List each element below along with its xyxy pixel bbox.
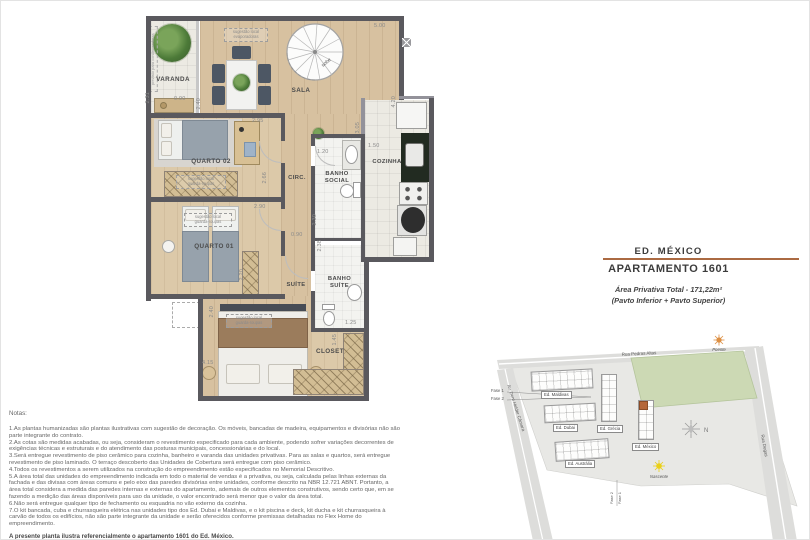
wardrobe-note-q2: sugestão local guarda-roupas [176, 175, 226, 189]
label-ed-grecia: Ed. Grécia [597, 425, 623, 433]
wall-segment [364, 261, 369, 401]
room-label-banho-social: BANHO SOCIAL [314, 171, 360, 184]
dim-label: 0.90 [291, 232, 303, 238]
bed-bench [220, 304, 306, 311]
pillow [226, 364, 260, 384]
wall-segment [146, 294, 285, 299]
area-total-label: Área Privativa Total - 171,22m² [586, 285, 751, 294]
dim-label: 2.40 [196, 98, 202, 110]
note-item: 5.A área total das unidades do empreendi… [9, 474, 401, 501]
nightstand [202, 366, 216, 380]
decor-bowl [160, 102, 167, 109]
wall-segment [198, 396, 369, 401]
apartment-title: APARTAMENTO 1601 [601, 263, 736, 275]
wall-segment [361, 257, 434, 262]
notes-footer: A presente planta ilustra referencialmen… [9, 533, 401, 540]
nascente-label: Nascente [650, 474, 669, 479]
reserved-area-outline [172, 302, 200, 328]
kitchen-cabinet [393, 237, 417, 256]
wall-segment [146, 197, 285, 202]
highlighted-unit-marker [639, 401, 648, 410]
label-ed-mexico: Ed. México [632, 443, 659, 451]
toilet-bowl-suite [323, 311, 335, 326]
dim-label: 5.00 [374, 23, 386, 29]
shaft-icon [402, 38, 411, 47]
wall-segment [146, 16, 151, 301]
wall-segment [281, 113, 285, 141]
note-item: 4.Todos os revestimentos a serem utiliza… [9, 467, 401, 474]
wall-segment [311, 138, 315, 146]
wall-segment [311, 241, 315, 271]
room-label-quarto01: QUARTO 01 [174, 243, 254, 250]
toilet-tank [353, 182, 361, 198]
fase2-vertical-label: Fase 2 [609, 492, 614, 504]
note-item: 6.Não será entregue qualquer tipo de fec… [9, 501, 401, 508]
room-label-circ: CIRC. [282, 175, 312, 182]
washbasin [345, 145, 358, 164]
wall-segment [311, 134, 365, 138]
chair [232, 46, 251, 59]
label-ed-australia: Ed. Austrália [565, 460, 595, 468]
dim-label: 2.95 [252, 118, 264, 124]
chair [258, 64, 271, 83]
wall-segment [198, 296, 203, 401]
label-ed-maldivas: Ed. Maldivas [541, 391, 572, 399]
poente-label: Poente [712, 347, 726, 352]
room-label-varanda: VARANDA [148, 76, 198, 83]
dim-label: 1.45 [332, 334, 338, 346]
wall-segment [399, 16, 404, 100]
dim-label: 2.66 [262, 172, 268, 184]
toilet-tank-suite [322, 304, 335, 310]
area-pavtos-label: (Pavto Inferior + Pavto Superior) [586, 296, 751, 305]
oven-door [401, 207, 425, 233]
building-title: ED. MÉXICO [601, 246, 736, 257]
wall-segment [311, 328, 364, 332]
building-dubai [544, 403, 597, 424]
cooktop [399, 182, 428, 205]
floorplan-page: previsto para condensadoras sobe sugestã… [0, 0, 810, 540]
bed-blanket [212, 231, 239, 282]
bed-blanket [182, 231, 209, 282]
chair [258, 86, 271, 105]
site-plan: N Poente Nascente Fase 2 Fase 1 [491, 334, 810, 540]
wall-segment [146, 113, 285, 118]
title-divider [603, 258, 799, 260]
building-australia [554, 438, 609, 462]
dim-label: 4.20 [391, 96, 397, 108]
half-wall [361, 98, 365, 136]
closet-wardrobe-bottom [293, 369, 364, 395]
building-grecia [601, 374, 617, 422]
dim-label: 1.25 [345, 320, 357, 326]
room-label-suite: SUÍTE [279, 282, 313, 289]
note-item: 7.O kit bancada, cuba e churrasqueira el… [9, 508, 401, 528]
dim-label: 2.38 [317, 240, 323, 252]
room-label-quarto02: QUARTO 02 [171, 158, 251, 165]
wall-segment [361, 136, 365, 261]
dim-label: 2.40 [209, 306, 215, 318]
compass-north-label: N [704, 428, 708, 434]
wardrobe-note-q1: sugestão local guarda-roupas [184, 213, 232, 227]
room-label-sala: SALA [284, 87, 318, 94]
dim-label: 0.90 [174, 96, 186, 102]
poente-sun-icon [714, 335, 725, 346]
wall-segment [146, 16, 404, 21]
fase1-label: Fase 1 [491, 388, 504, 393]
wardrobe-note-suite: sugestão local guarda-roupas [226, 314, 272, 328]
note-item: 3.Será entregue revestimento de piso cer… [9, 453, 401, 467]
plant-icon [153, 24, 191, 62]
ac-suggestion-note: sugestão local evaporadoras [224, 28, 268, 42]
notes-heading: Notas: [9, 410, 401, 417]
table-plant-icon [233, 74, 250, 91]
toilet-bowl [340, 184, 354, 198]
dim-label: 2.20 [239, 269, 245, 281]
dim-label: 1.50 [368, 143, 380, 149]
notes-block: Notas: 1.As plantas humanizadas são plan… [9, 410, 401, 540]
floor-plan: previsto para condensadoras sobe sugestã… [146, 16, 438, 402]
dim-label: 2.90 [254, 204, 266, 210]
fridge [396, 102, 427, 129]
room-label-cozinha: COZINHA [365, 159, 409, 166]
dim-label: 2.30 [312, 214, 318, 226]
chair [212, 64, 225, 83]
room-label-closet: CLOSET [304, 348, 356, 355]
desk-papers [244, 142, 256, 157]
chair [212, 86, 225, 105]
building-maldivas [531, 368, 594, 391]
wall-segment [429, 98, 434, 261]
dim-label: 3.05 [355, 122, 361, 134]
room-label-banho-suite: BANHO SUÍTE [315, 276, 364, 289]
dim-label: 1.20 [317, 149, 329, 155]
wall-segment [311, 291, 315, 331]
note-item: 1.As plantas humanizadas são plantas ilu… [9, 426, 401, 440]
wall-segment [281, 231, 285, 256]
spiral-stair-icon: sobe [282, 20, 346, 84]
dim-label: 2.31 [145, 92, 151, 104]
desk-lamp [239, 127, 244, 132]
fase1-vertical-label: Fase 1 [617, 492, 622, 504]
bed-blanket [182, 120, 228, 160]
pillow [161, 123, 172, 138]
wall-segment [281, 163, 285, 209]
note-item: 2.As cotas são medidas acabadas, ou seja… [9, 440, 401, 454]
fase2-label: Fase 2 [491, 396, 504, 401]
pillow [161, 141, 172, 156]
label-ed-dubai: Ed. Dubai [553, 424, 578, 432]
dim-label: 4.15 [202, 360, 214, 366]
